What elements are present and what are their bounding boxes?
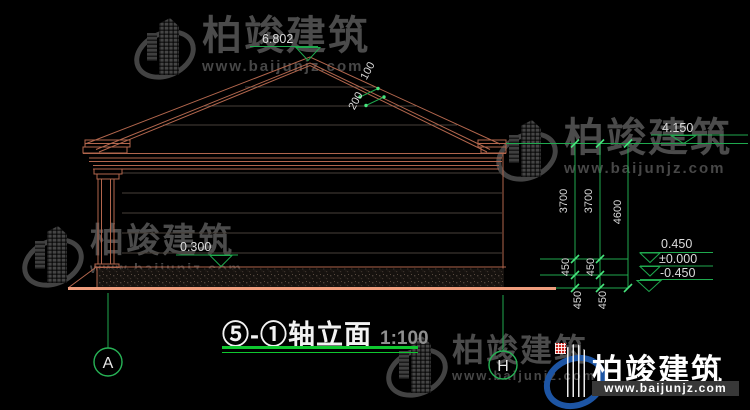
ridge-level-text: 6.802 xyxy=(262,32,293,46)
dim-3700-b: 3700 xyxy=(583,189,595,213)
title-underline-thick xyxy=(222,346,418,349)
column-capital xyxy=(94,169,122,174)
height-dimension-chains: 3700 3700 4600 450 450 450 450 xyxy=(540,140,632,310)
axis-label-h: H xyxy=(497,358,509,375)
dim-450-b-lower: 450 xyxy=(597,291,609,309)
roof-dim-200: 200 xyxy=(346,90,365,112)
datum-level-symbols: 0.450 ±0.000 -0.450 xyxy=(637,237,713,292)
brand-building-icon xyxy=(563,343,587,397)
plinth-hatch xyxy=(97,269,504,288)
apron-slope xyxy=(68,268,95,288)
siding-lines xyxy=(122,87,502,253)
dim-4600-total: 4600 xyxy=(612,200,624,224)
cad-canvas: 柏竣建筑 www.baijunjz.com 柏竣建筑 www.baijunjz.… xyxy=(0,0,750,410)
title-underline-thin xyxy=(222,352,418,354)
dim-450-a-upper: 450 xyxy=(560,258,572,276)
brand-red-square-icon xyxy=(555,343,566,354)
dim-450-b-upper: 450 xyxy=(585,258,597,276)
brand-logo-block: 柏竣建筑 www.baijunjz.com xyxy=(543,342,748,402)
brand-url: www.baijunjz.com xyxy=(592,381,739,396)
dim-450-a-lower: 450 xyxy=(572,291,584,309)
level-minus-0450: -0.450 xyxy=(660,266,695,280)
roof-dim-100: 100 xyxy=(358,60,377,82)
level-zero: ±0.000 xyxy=(659,252,697,266)
dim-3700-a: 3700 xyxy=(558,189,570,213)
roof xyxy=(83,57,506,169)
axis-label-a: A xyxy=(103,355,114,372)
ridge-level-marker: 6.802 xyxy=(250,32,320,61)
wall-level-text: 0.300 xyxy=(180,240,211,254)
eave-level-marker: 4.150 xyxy=(506,121,748,144)
eave-level-text: 4.150 xyxy=(662,121,693,135)
level-plus-0450: 0.450 xyxy=(661,237,692,251)
